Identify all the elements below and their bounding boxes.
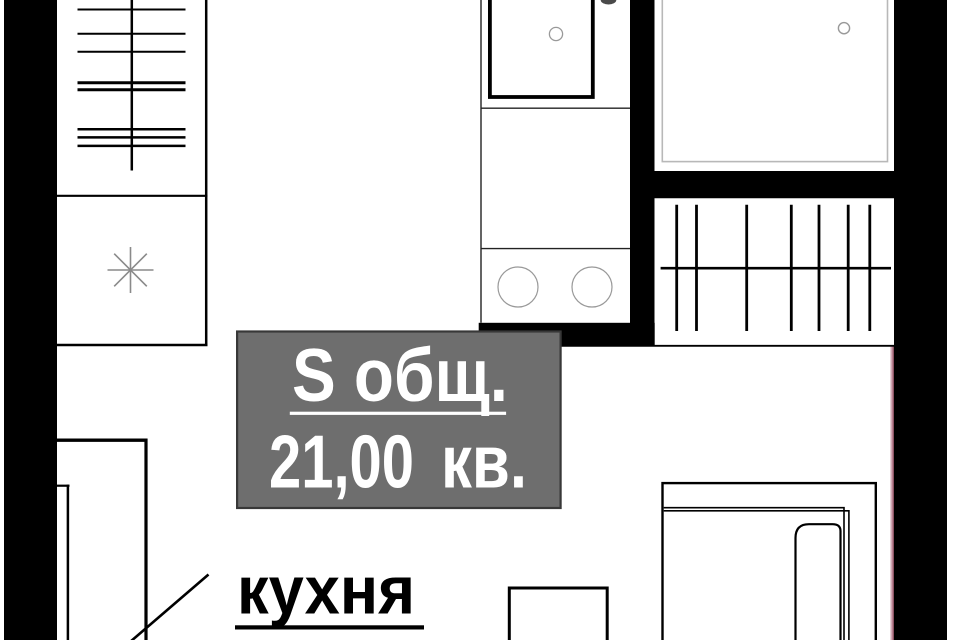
svg-text:кухня: кухня [237,553,415,629]
svg-text:S общ.: S общ. [292,333,508,417]
svg-text:21,00: 21,00 [269,420,414,504]
svg-text:кв.: кв. [441,420,527,504]
